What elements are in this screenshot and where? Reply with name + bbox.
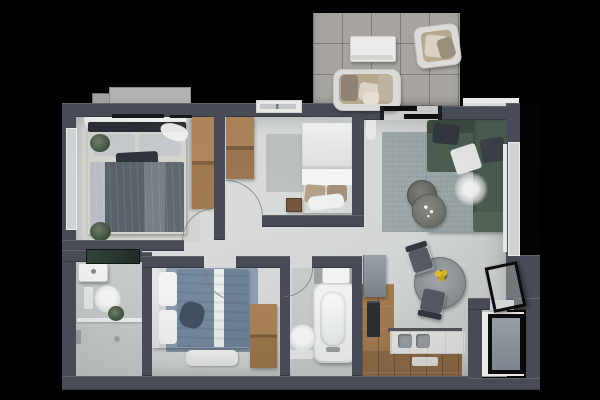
kitchen-sink <box>398 334 412 348</box>
pillow <box>363 92 379 104</box>
wall-bath2-right <box>352 256 362 376</box>
outdoor-coffee-table <box>350 36 396 62</box>
sofa-chaise <box>473 212 507 232</box>
sliding-door-rail <box>383 106 417 111</box>
toilet <box>289 324 314 360</box>
bathtub-faucet <box>326 347 340 352</box>
sliding-door-post <box>380 106 384 120</box>
wall-bedroom-partition <box>214 103 225 240</box>
bathtub-basin <box>320 291 346 347</box>
coffee-table-large <box>412 194 446 228</box>
wall-bottom <box>62 376 482 390</box>
throw-blanket <box>307 193 344 211</box>
vanity-basin <box>322 267 350 284</box>
window-bedroom2 <box>256 100 302 113</box>
bedroom-second-rug <box>266 134 304 192</box>
potted-plant <box>108 306 124 321</box>
wall-bath1-top-left <box>62 250 88 262</box>
wardrobe-third <box>250 304 277 368</box>
shower-drain <box>114 336 120 342</box>
wardrobe-second <box>226 117 254 179</box>
washbasin <box>78 263 108 282</box>
headboard <box>152 268 159 348</box>
tall-cabinet <box>363 255 386 297</box>
outdoor-loveseat <box>333 69 401 111</box>
wall-bedroom2-right <box>352 103 364 227</box>
sliding-door-rail <box>404 114 442 119</box>
outdoor-armchair <box>413 22 463 69</box>
bathtub <box>313 283 357 363</box>
sliding-door-post <box>438 106 442 120</box>
floorplan <box>0 0 600 400</box>
wall-corridor-a <box>142 256 204 268</box>
toilet-tank <box>289 350 313 359</box>
window-sill-inner <box>503 144 507 252</box>
kitchen-mat <box>412 357 438 366</box>
flower-centerpiece <box>433 268 450 282</box>
doormat <box>492 318 520 370</box>
pillow <box>159 310 177 344</box>
table-side-face <box>351 55 393 60</box>
wardrobe-main <box>192 117 215 209</box>
curtain <box>366 120 376 140</box>
faucet <box>91 269 96 274</box>
duvet <box>302 123 352 169</box>
single-bed <box>302 123 352 213</box>
toilet-bowl <box>289 324 316 352</box>
pillow <box>159 272 177 306</box>
bench <box>186 350 238 366</box>
wall-entry-top-left <box>468 298 490 310</box>
wall-bath1-divider <box>142 252 152 376</box>
window-left <box>66 128 77 230</box>
wall-entry-bottom <box>468 378 540 390</box>
curtain-rail <box>112 114 164 118</box>
bathroom-glass-door <box>86 249 140 264</box>
curtain-rail <box>170 115 192 118</box>
toilet-tank <box>84 287 93 309</box>
oven <box>367 301 380 337</box>
shower-fixture <box>76 330 81 344</box>
window-glass <box>260 104 296 109</box>
pillow <box>378 75 393 101</box>
wall-corridor-b <box>236 256 282 268</box>
pillow <box>432 123 460 146</box>
wall-entry-right <box>526 298 540 390</box>
plant-pouf <box>90 222 111 241</box>
wall-bedroom2-bottom <box>262 215 364 227</box>
sheet <box>302 169 352 185</box>
pillow <box>341 75 358 101</box>
duvet <box>90 162 184 232</box>
window-right <box>508 142 520 256</box>
plant-pouf <box>90 134 110 152</box>
nightstand <box>286 198 302 212</box>
wall-top <box>62 103 352 117</box>
wall-entry-left <box>468 298 482 390</box>
kitchen-sink <box>416 334 430 348</box>
